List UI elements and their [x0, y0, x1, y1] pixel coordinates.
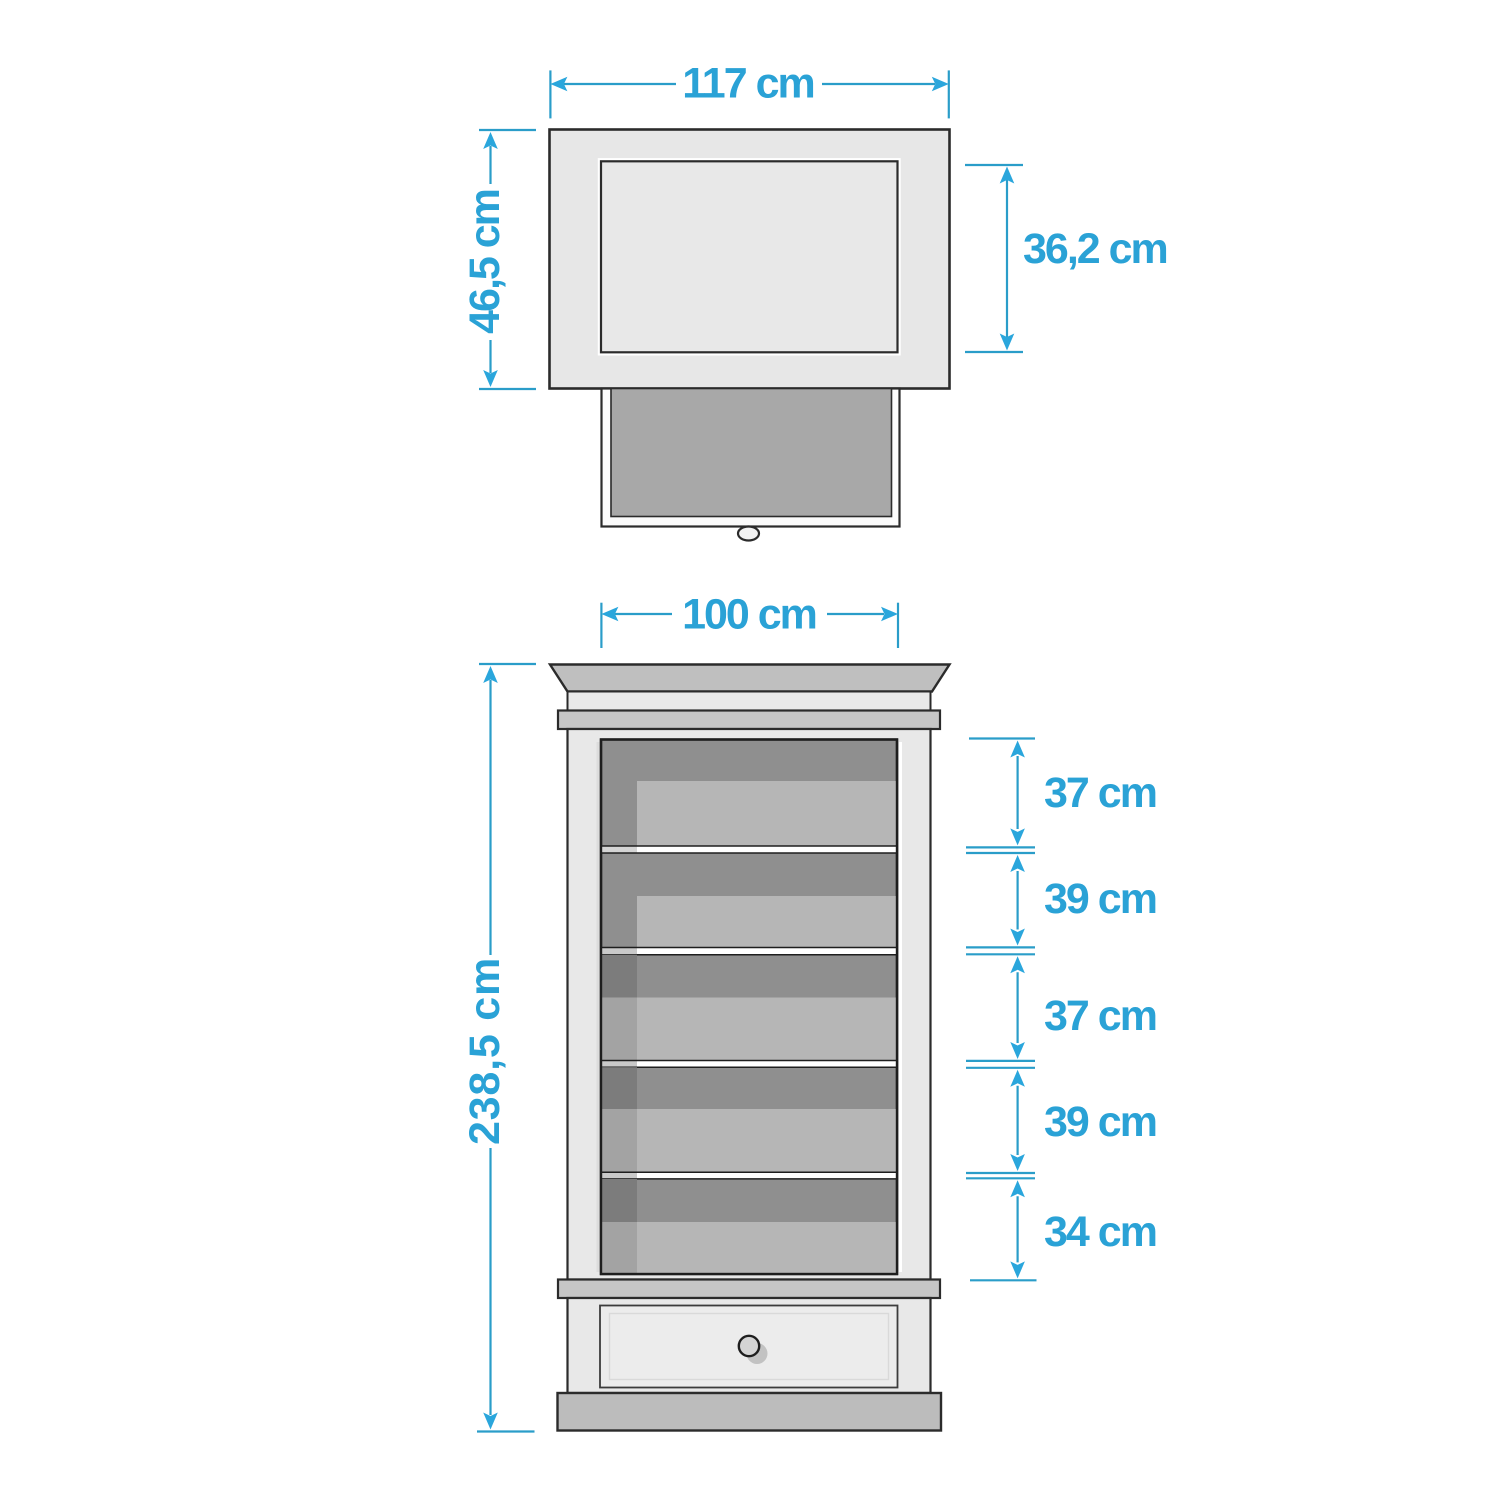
svg-text:100 cm: 100 cm	[682, 591, 816, 639]
svg-text:36,2 cm: 36,2 cm	[1023, 225, 1167, 273]
svg-text:34 cm: 34 cm	[1044, 1208, 1156, 1256]
svg-text:117 cm: 117 cm	[682, 60, 813, 108]
svg-text:37 cm: 37 cm	[1044, 992, 1156, 1040]
svg-text:37 cm: 37 cm	[1044, 769, 1156, 817]
svg-text:46,5 cm: 46,5 cm	[461, 190, 509, 334]
svg-text:39 cm: 39 cm	[1044, 875, 1156, 923]
svg-text:39 cm: 39 cm	[1044, 1098, 1156, 1146]
svg-text:238,5 cm: 238,5 cm	[461, 957, 509, 1145]
